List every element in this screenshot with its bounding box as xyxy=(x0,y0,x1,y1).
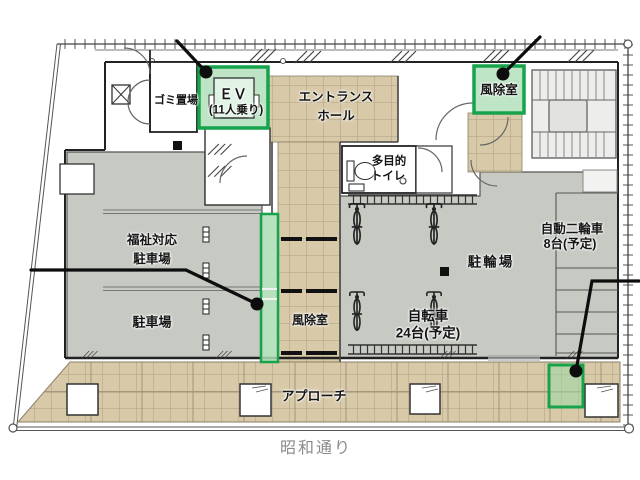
label-motorcycle-count: 8台(予定) xyxy=(544,238,597,251)
label-entrance-hall-2: ホール xyxy=(317,110,355,123)
label-elevator: ＥＶ xyxy=(219,87,247,101)
windbreak-middle-highlight xyxy=(261,214,278,362)
boundary-corner-marker xyxy=(624,40,632,48)
column xyxy=(60,164,94,194)
label-garbage-room: ゴミ置場 xyxy=(154,96,198,107)
label-motorcycle: 自動二輪車 xyxy=(541,223,604,236)
label-street-name: 昭和通り xyxy=(280,441,352,457)
column-marker xyxy=(173,141,182,150)
floor-plan: ゴミ置場 ＥＶ (11人乗り) エントランス ホール 風除室 多目的 トイレ 福… xyxy=(0,0,640,480)
column-marker xyxy=(440,267,449,276)
boundary-corner-marker xyxy=(9,424,17,432)
label-toilet-2: トイレ xyxy=(371,171,406,183)
label-welfare-parking: 福祉対応 xyxy=(127,234,177,247)
service-room xyxy=(205,128,270,205)
label-approach: アプローチ xyxy=(281,390,346,403)
bike-rack-bottom xyxy=(348,345,477,354)
floor-areas xyxy=(18,76,620,422)
label-elevator-capacity: (11人乗り) xyxy=(209,105,263,117)
boundary-corner-marker xyxy=(625,424,634,433)
bike-rack-top xyxy=(348,195,477,204)
label-bicycle-count: 24台(予定) xyxy=(396,326,461,340)
label-welfare-parking-2: 駐車場 xyxy=(133,253,171,266)
label-bicycle-parking: 駐輪場 xyxy=(468,255,515,269)
label-windbreak-top: 風除室 xyxy=(480,84,518,97)
label-bicycle: 自転車 xyxy=(408,309,449,323)
shaft-box xyxy=(112,85,130,104)
label-toilet: 多目的 xyxy=(372,156,407,168)
corridor-floor xyxy=(278,142,340,362)
label-parking: 駐車場 xyxy=(132,316,171,329)
windbreak-floor xyxy=(468,113,522,172)
label-entrance-hall: エントランス xyxy=(299,91,374,104)
label-windbreak-middle: 風除室 xyxy=(292,314,328,326)
